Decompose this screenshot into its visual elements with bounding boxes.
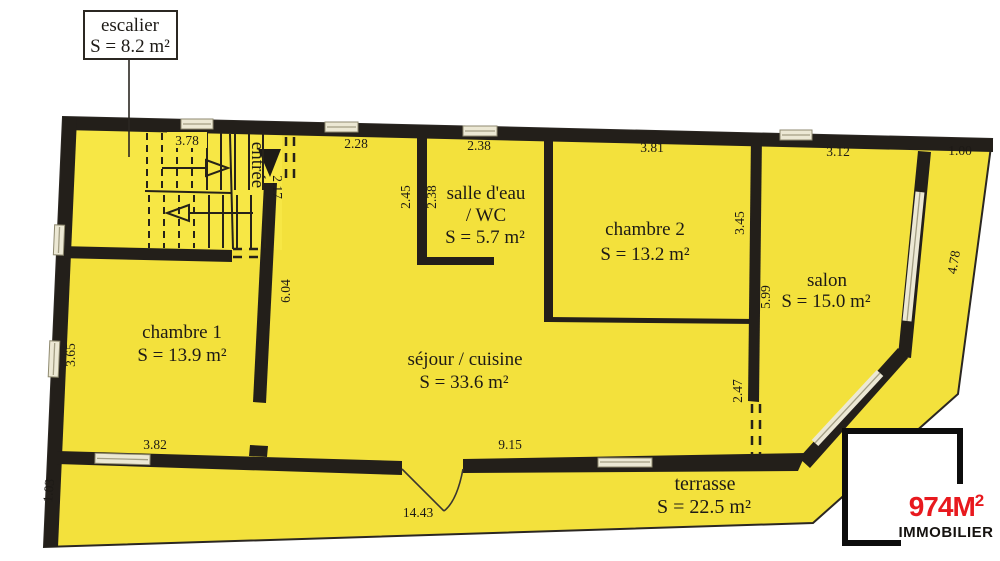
- label-sejour: séjour / cuisine: [407, 349, 522, 370]
- label-sejour-area: S = 33.6 m²: [419, 372, 509, 393]
- dim-chambre1-divider: 6.04: [278, 279, 293, 303]
- floorplan-drawing: 3.78 2.28 2.38 3.81 3.12 1.00 2.17 2.45 …: [0, 0, 1000, 561]
- label-chambre2: chambre 2: [605, 219, 685, 240]
- window-bottom-2: [598, 458, 652, 467]
- dim-entree-top: 2.28: [344, 136, 368, 151]
- window-left-1: [53, 225, 64, 255]
- dim-salle-top: 2.38: [467, 138, 491, 153]
- label-entree: entrée: [247, 142, 268, 188]
- wall-door-stub: [249, 445, 268, 457]
- wall-chambre2-left: [544, 132, 553, 322]
- callout-title: escalier: [101, 15, 160, 36]
- dim-salle-left-outer: 2.45: [398, 185, 413, 209]
- label-chambre2-area: S = 13.2 m²: [600, 244, 690, 265]
- label-salon-area: S = 15.0 m²: [781, 291, 871, 312]
- dim-chambre1-bottom: 3.82: [143, 437, 167, 452]
- label-chambre1-area: S = 13.9 m²: [137, 345, 227, 366]
- logo-brand-text: 974M2: [909, 491, 984, 522]
- dim-salon-opening: 2.47: [730, 379, 745, 403]
- wall-salle-eau-bottom: [417, 257, 494, 265]
- window-top-1: [181, 119, 213, 129]
- label-salle-eau-1: salle d'eau: [447, 183, 526, 204]
- label-salon: salon: [807, 270, 848, 291]
- callout-area: S = 8.2 m²: [90, 36, 170, 57]
- dim-chambre2-top: 3.81: [640, 140, 664, 155]
- dim-sejour-bottom: 9.15: [498, 437, 522, 452]
- label-salle-eau-area: S = 5.7 m²: [445, 227, 525, 248]
- dim-chambre2-side: 3.45: [732, 211, 747, 235]
- window-top-3: [463, 126, 497, 136]
- window-bottom-1: [95, 453, 150, 464]
- dim-salon-side: 5.99: [758, 285, 773, 309]
- logo-subtitle-text: IMMOBILIER: [899, 524, 994, 541]
- dim-terrasse-bottom: 14.43: [403, 505, 434, 520]
- label-terrasse: terrasse: [674, 473, 735, 495]
- dim-salon-top: 3.12: [826, 144, 850, 159]
- dim-entree-side: 2.17: [270, 175, 285, 199]
- dim-salle-left-inner: 2.38: [424, 185, 439, 209]
- label-salle-eau-2: / WC: [466, 205, 506, 226]
- dim-chambre1-left: 3.65: [63, 343, 78, 367]
- dim-right-strip: 1.00: [948, 143, 972, 158]
- agency-logo: 974M2 IMMOBILIER: [845, 429, 994, 545]
- dim-terrasse-side: 1.03: [40, 478, 57, 503]
- window-top-2: [325, 122, 358, 132]
- label-terrasse-area: S = 22.5 m²: [657, 496, 751, 518]
- window-left-2: [48, 341, 60, 377]
- label-chambre1: chambre 1: [142, 322, 222, 343]
- dim-stairs-top: 3.78: [175, 133, 199, 148]
- window-top-4: [780, 130, 812, 140]
- floorplan-page: 3.78 2.28 2.38 3.81 3.12 1.00 2.17 2.45 …: [0, 0, 1000, 561]
